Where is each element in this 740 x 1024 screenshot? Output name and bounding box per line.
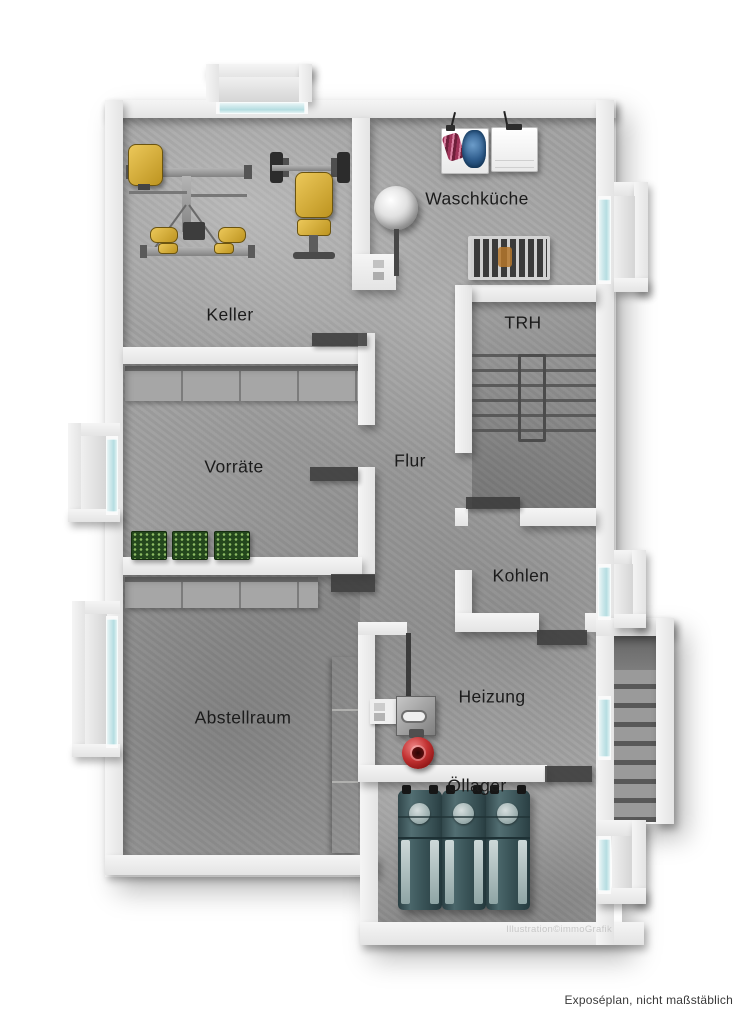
wall-segment	[360, 782, 378, 922]
oil-tank	[430, 840, 439, 904]
wall-segment	[105, 100, 616, 118]
barbell-plate	[331, 158, 337, 177]
oil-tank	[442, 790, 486, 910]
barbell-plate	[337, 152, 350, 183]
multi-gym-roller	[158, 243, 178, 254]
oil-tank-valve	[429, 785, 438, 794]
wall-segment	[352, 118, 370, 256]
window-glass	[598, 696, 611, 760]
window-bay	[614, 614, 646, 628]
storage-cabinet-row	[125, 366, 358, 401]
window-bay	[299, 64, 312, 102]
round-boiler	[374, 186, 418, 230]
oil-tank-valve	[517, 785, 526, 794]
wall-segment	[455, 285, 596, 302]
room-label-keller: Keller	[206, 305, 253, 326]
room-label-heizung: Heizung	[458, 687, 525, 708]
window-bay	[72, 601, 85, 757]
washing-machine	[491, 127, 538, 172]
meter-box	[374, 713, 385, 721]
laundry-on-rack	[498, 247, 512, 267]
wall-segment	[455, 570, 472, 615]
wall-segment	[596, 100, 614, 618]
window-bay	[634, 182, 648, 292]
oil-tank-valve	[402, 785, 411, 794]
window-glass	[598, 836, 611, 894]
weight-bench	[293, 252, 335, 259]
window-bay	[68, 423, 81, 522]
wall-segment	[455, 613, 539, 632]
multi-gym-station	[138, 184, 150, 190]
pump-center	[412, 747, 424, 759]
oil-tank	[489, 840, 498, 904]
window-bay	[614, 278, 648, 292]
multi-gym-seat	[128, 144, 163, 186]
multi-gym-roller	[218, 227, 246, 243]
watermark: Illustration©immoGrafik	[430, 924, 612, 935]
oil-tank-cap	[409, 803, 430, 824]
room-label-oellager: Öllager	[447, 776, 506, 797]
multi-gym-roller	[150, 227, 178, 243]
window-lightwell	[614, 196, 635, 278]
multi-gym-station	[140, 245, 147, 258]
circulation-pump	[402, 737, 434, 769]
weight-bench	[309, 235, 318, 252]
wall-segment	[358, 622, 407, 635]
room-label-flur: Flur	[394, 451, 426, 472]
door-opening-bar	[537, 630, 587, 645]
window-glass	[598, 564, 611, 620]
wall-segment	[105, 855, 378, 875]
washer-connector	[446, 125, 455, 131]
meter-box	[374, 703, 385, 711]
oil-tank	[401, 840, 410, 904]
wall-segment	[358, 333, 375, 425]
boiler-stand	[394, 229, 399, 276]
bottle-crate	[131, 531, 167, 560]
exterior-stairs-landing	[614, 636, 656, 670]
door-opening-bar	[331, 574, 375, 592]
wall-segment	[656, 618, 674, 824]
wall-segment	[455, 508, 468, 526]
room-label-kohlen: Kohlen	[493, 566, 550, 587]
window-bay	[206, 64, 312, 77]
window-lightwell	[612, 836, 632, 888]
oil-tank	[486, 790, 530, 910]
multi-gym-station	[183, 222, 205, 240]
multi-gym-station	[129, 191, 187, 194]
window-lightwell	[614, 564, 633, 614]
oil-tank	[398, 790, 442, 910]
exterior-staircase	[614, 670, 656, 822]
heating-pipe	[406, 633, 411, 697]
oil-tank-pipe	[398, 816, 530, 818]
wall-segment	[358, 622, 375, 765]
storage-cabinet-row	[125, 577, 318, 608]
shelf-column	[332, 657, 358, 853]
multi-gym-station	[191, 194, 247, 197]
staircase-railing	[518, 354, 546, 442]
window-lightwell	[81, 436, 107, 509]
meter-box	[370, 699, 396, 724]
oil-tank	[474, 840, 483, 904]
wall-segment	[520, 508, 596, 526]
laundry-pile	[462, 130, 486, 168]
oil-tank-cap	[497, 803, 518, 824]
oil-tank	[518, 840, 527, 904]
door-opening-bar	[310, 467, 358, 481]
window-glass	[598, 196, 611, 284]
room-label-trh: TRH	[504, 313, 541, 334]
washer-door-seam	[495, 160, 534, 168]
multi-gym-roller	[214, 243, 234, 254]
window-bay	[206, 64, 219, 102]
oil-tank-cap	[453, 803, 474, 824]
weight-bench-seat	[297, 219, 331, 236]
multi-gym-station	[244, 165, 252, 179]
furnace-handle	[401, 710, 427, 723]
window-glass	[106, 616, 118, 748]
room-label-abstellraum: Abstellraum	[195, 708, 292, 729]
bottle-crate	[214, 531, 250, 560]
wall-segment	[455, 285, 472, 453]
meter-box	[373, 260, 384, 268]
washer-connector	[506, 124, 522, 130]
window-lightwell	[219, 77, 299, 102]
floorplan-canvas: Keller Waschküche TRH Vorräte Flur Kohle…	[0, 0, 740, 1024]
multi-gym-station	[248, 245, 255, 258]
room-label-vorraete: Vorräte	[204, 457, 263, 478]
drying-rack	[468, 236, 550, 280]
weight-bench-pad	[295, 172, 333, 218]
door-opening-bar	[466, 497, 520, 509]
window-lightwell	[85, 614, 107, 744]
door-opening-bar	[545, 766, 592, 782]
footer-note: Exposéplan, nicht maßstäblich	[0, 993, 733, 1007]
wall-segment	[123, 347, 362, 364]
bottle-crate	[172, 531, 208, 560]
window-glass	[106, 436, 118, 515]
meter-box	[373, 272, 384, 280]
window-glass	[216, 102, 308, 114]
washing-machine-with-laundry	[441, 128, 489, 174]
oil-tank	[445, 840, 454, 904]
door-opening-bar	[312, 333, 367, 346]
room-label-waschkueche: Waschküche	[425, 189, 529, 210]
